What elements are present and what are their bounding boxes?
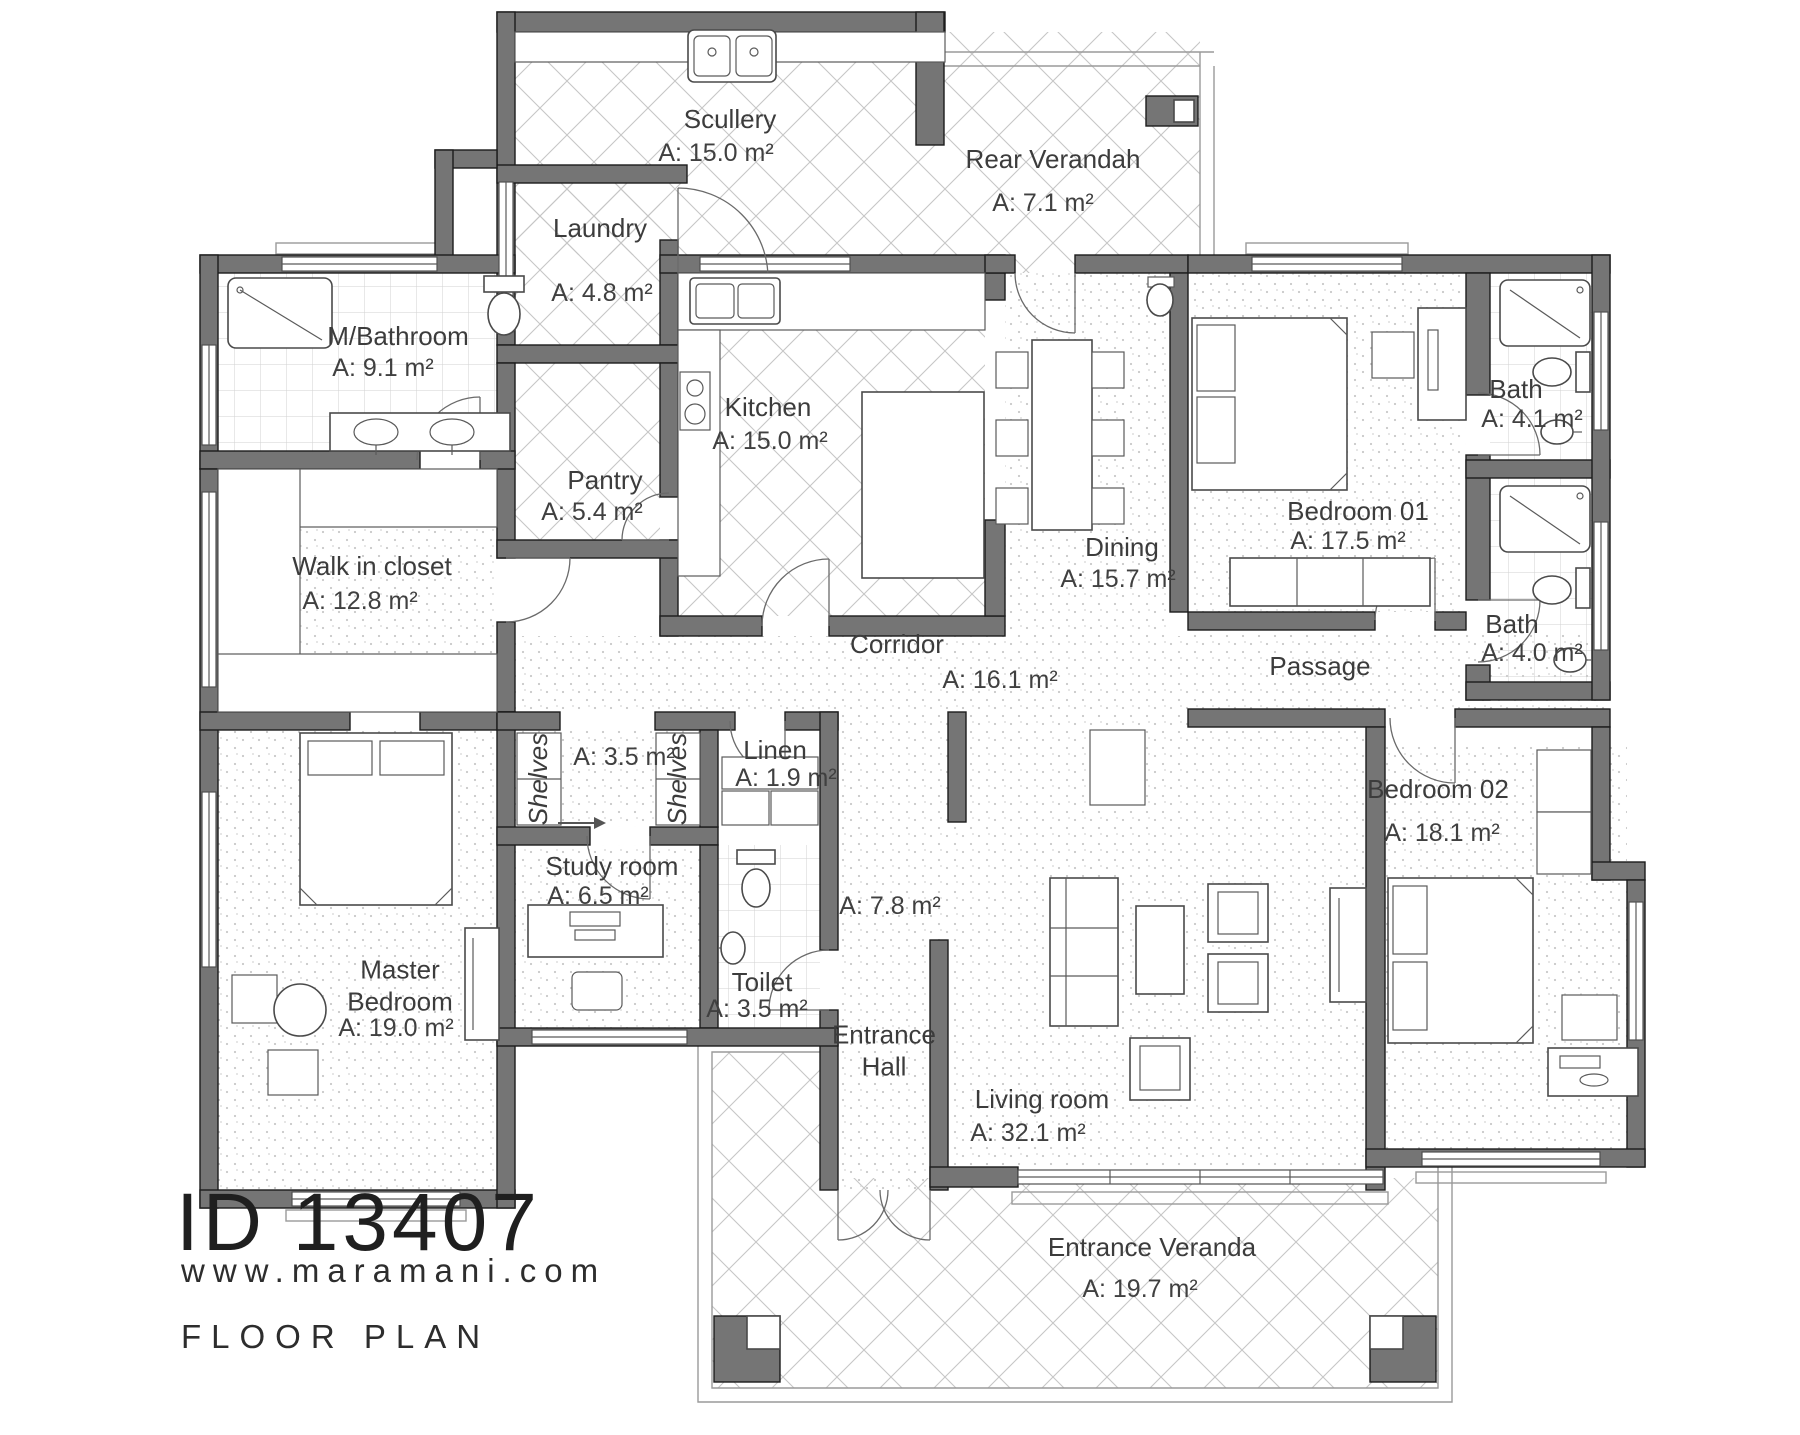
room-label-kitchen: Kitchen — [725, 392, 812, 424]
room-area-linen: A: 1.9 m² — [735, 763, 836, 794]
room-label-passage: Passage — [1269, 651, 1370, 683]
room-label-bath-1: Bath — [1489, 374, 1543, 406]
room-area-bath-1: A: 4.1 m² — [1481, 404, 1582, 435]
room-area-pantry: A: 5.4 m² — [541, 497, 642, 528]
dining-table-icon — [996, 340, 1124, 530]
room-label-bath-2: Bath — [1485, 609, 1539, 641]
room-area-entrance-hall: A: 7.8 m² — [839, 891, 940, 922]
bed-icon — [300, 733, 452, 905]
shower-icon — [228, 278, 332, 348]
room-label-bedroom-02: Bedroom 02 — [1367, 774, 1509, 806]
room-area-master-bedroom: A: 19.0 m² — [338, 1013, 453, 1044]
room-area-laundry: A: 4.8 m² — [551, 278, 652, 309]
vanity-sink-icon — [330, 413, 510, 455]
bed-icon — [1388, 878, 1533, 1043]
tv-unit-icon — [1330, 888, 1366, 1002]
armchair-icon — [1130, 1038, 1190, 1100]
stove-icon — [680, 372, 710, 430]
room-label-master-bedroom: Master Bedroom — [330, 954, 470, 1017]
room-area-kitchen: A: 15.0 m² — [712, 426, 827, 457]
armchair-icon — [1208, 954, 1268, 1012]
room-area-shelf-passage: A: 3.5 m² — [573, 742, 674, 773]
room-area-m-bathroom: A: 9.1 m² — [332, 353, 433, 384]
armchair-icon — [1208, 884, 1268, 942]
caption-text: FLOOR PLAN — [181, 1318, 490, 1356]
room-area-walk-in-closet: A: 12.8 m² — [302, 586, 417, 617]
floor-plan-page: Scullery A: 15.0 m² Rear Verandah A: 7.1… — [0, 0, 1800, 1435]
room-label-pantry: Pantry — [567, 465, 642, 497]
room-label-walk-in-closet: Walk in closet — [292, 551, 451, 583]
room-area-dining: A: 15.7 m² — [1060, 564, 1175, 595]
bed-icon — [1192, 318, 1347, 490]
room-label-entrance-veranda: Entrance Veranda — [1048, 1232, 1256, 1264]
room-area-bedroom-01: A: 17.5 m² — [1290, 526, 1405, 557]
room-label-laundry: Laundry — [553, 213, 647, 245]
room-label-entrance-hall: Entrance Hall — [824, 1019, 944, 1082]
room-label-scullery: Scullery — [684, 104, 776, 136]
room-label-corridor: Corridor — [850, 629, 944, 661]
room-label-bedroom-01: Bedroom 01 — [1287, 496, 1429, 528]
sofa-icon — [1050, 878, 1118, 1026]
room-area-rear-verandah: A: 7.1 m² — [992, 188, 1093, 219]
website-text: www.maramani.com — [181, 1252, 606, 1290]
corner-basin-icon — [1147, 277, 1174, 316]
room-area-scullery: A: 15.0 m² — [658, 138, 773, 169]
shower-icon — [1500, 486, 1590, 552]
room-area-bedroom-02: A: 18.1 m² — [1384, 818, 1499, 849]
room-label-m-bathroom: M/Bathroom — [327, 321, 469, 353]
room-area-bath-2: A: 4.0 m² — [1481, 638, 1582, 669]
shower-icon — [1500, 280, 1590, 346]
room-label-dining: Dining — [1085, 532, 1159, 564]
room-area-living-room: A: 32.1 m² — [970, 1118, 1085, 1149]
kitchen-sink-icon — [690, 278, 780, 324]
room-area-entrance-veranda: A: 19.7 m² — [1082, 1274, 1197, 1305]
room-area-study-room: A: 6.5 m² — [547, 881, 648, 912]
room-label-living-room: Living room — [975, 1084, 1109, 1116]
room-label-study-room: Study room — [546, 851, 679, 883]
room-area-corridor: A: 16.1 m² — [942, 665, 1057, 696]
tv-unit-icon — [465, 928, 499, 1040]
room-area-toilet: A: 3.5 m² — [706, 994, 807, 1025]
room-label-rear-verandah: Rear Verandah — [966, 144, 1141, 176]
room-label-shelves-left: Shelves — [523, 733, 555, 826]
